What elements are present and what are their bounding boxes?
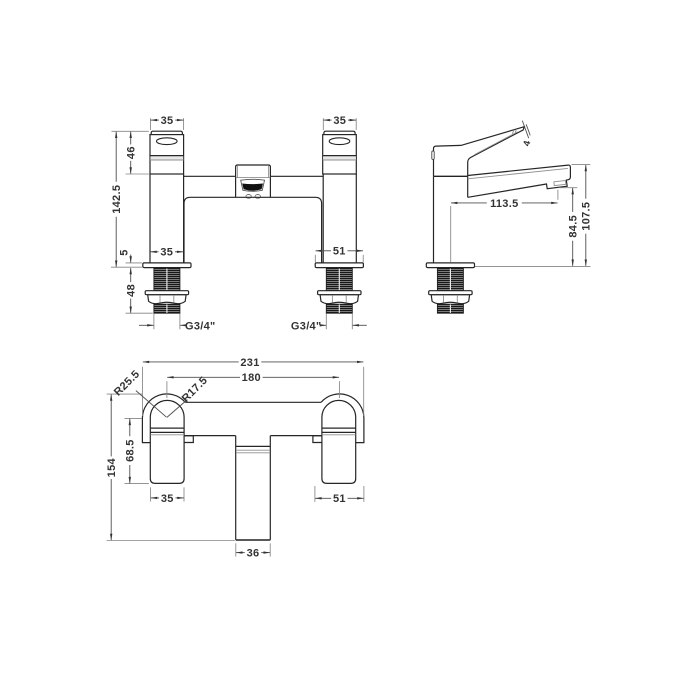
svg-text:84.5: 84.5 (568, 215, 580, 238)
svg-text:46: 46 (126, 146, 138, 159)
svg-text:35: 35 (160, 247, 173, 259)
svg-text:231: 231 (240, 357, 259, 369)
svg-text:G3/4": G3/4" (291, 321, 322, 333)
svg-text:180: 180 (242, 372, 261, 384)
svg-text:G3/4": G3/4" (185, 321, 216, 333)
svg-text:142.5: 142.5 (111, 185, 123, 214)
svg-text:35: 35 (161, 493, 174, 505)
svg-text:51: 51 (333, 493, 346, 505)
svg-text:36: 36 (247, 548, 260, 560)
svg-text:51: 51 (333, 246, 346, 258)
svg-text:113.5: 113.5 (490, 198, 518, 210)
svg-text:35: 35 (161, 115, 174, 127)
svg-text:154: 154 (106, 457, 118, 477)
svg-text:107.5: 107.5 (581, 202, 593, 231)
svg-text:48: 48 (126, 284, 138, 297)
svg-text:68.5: 68.5 (125, 439, 137, 462)
svg-text:35: 35 (333, 115, 346, 127)
svg-text:5: 5 (119, 249, 131, 255)
